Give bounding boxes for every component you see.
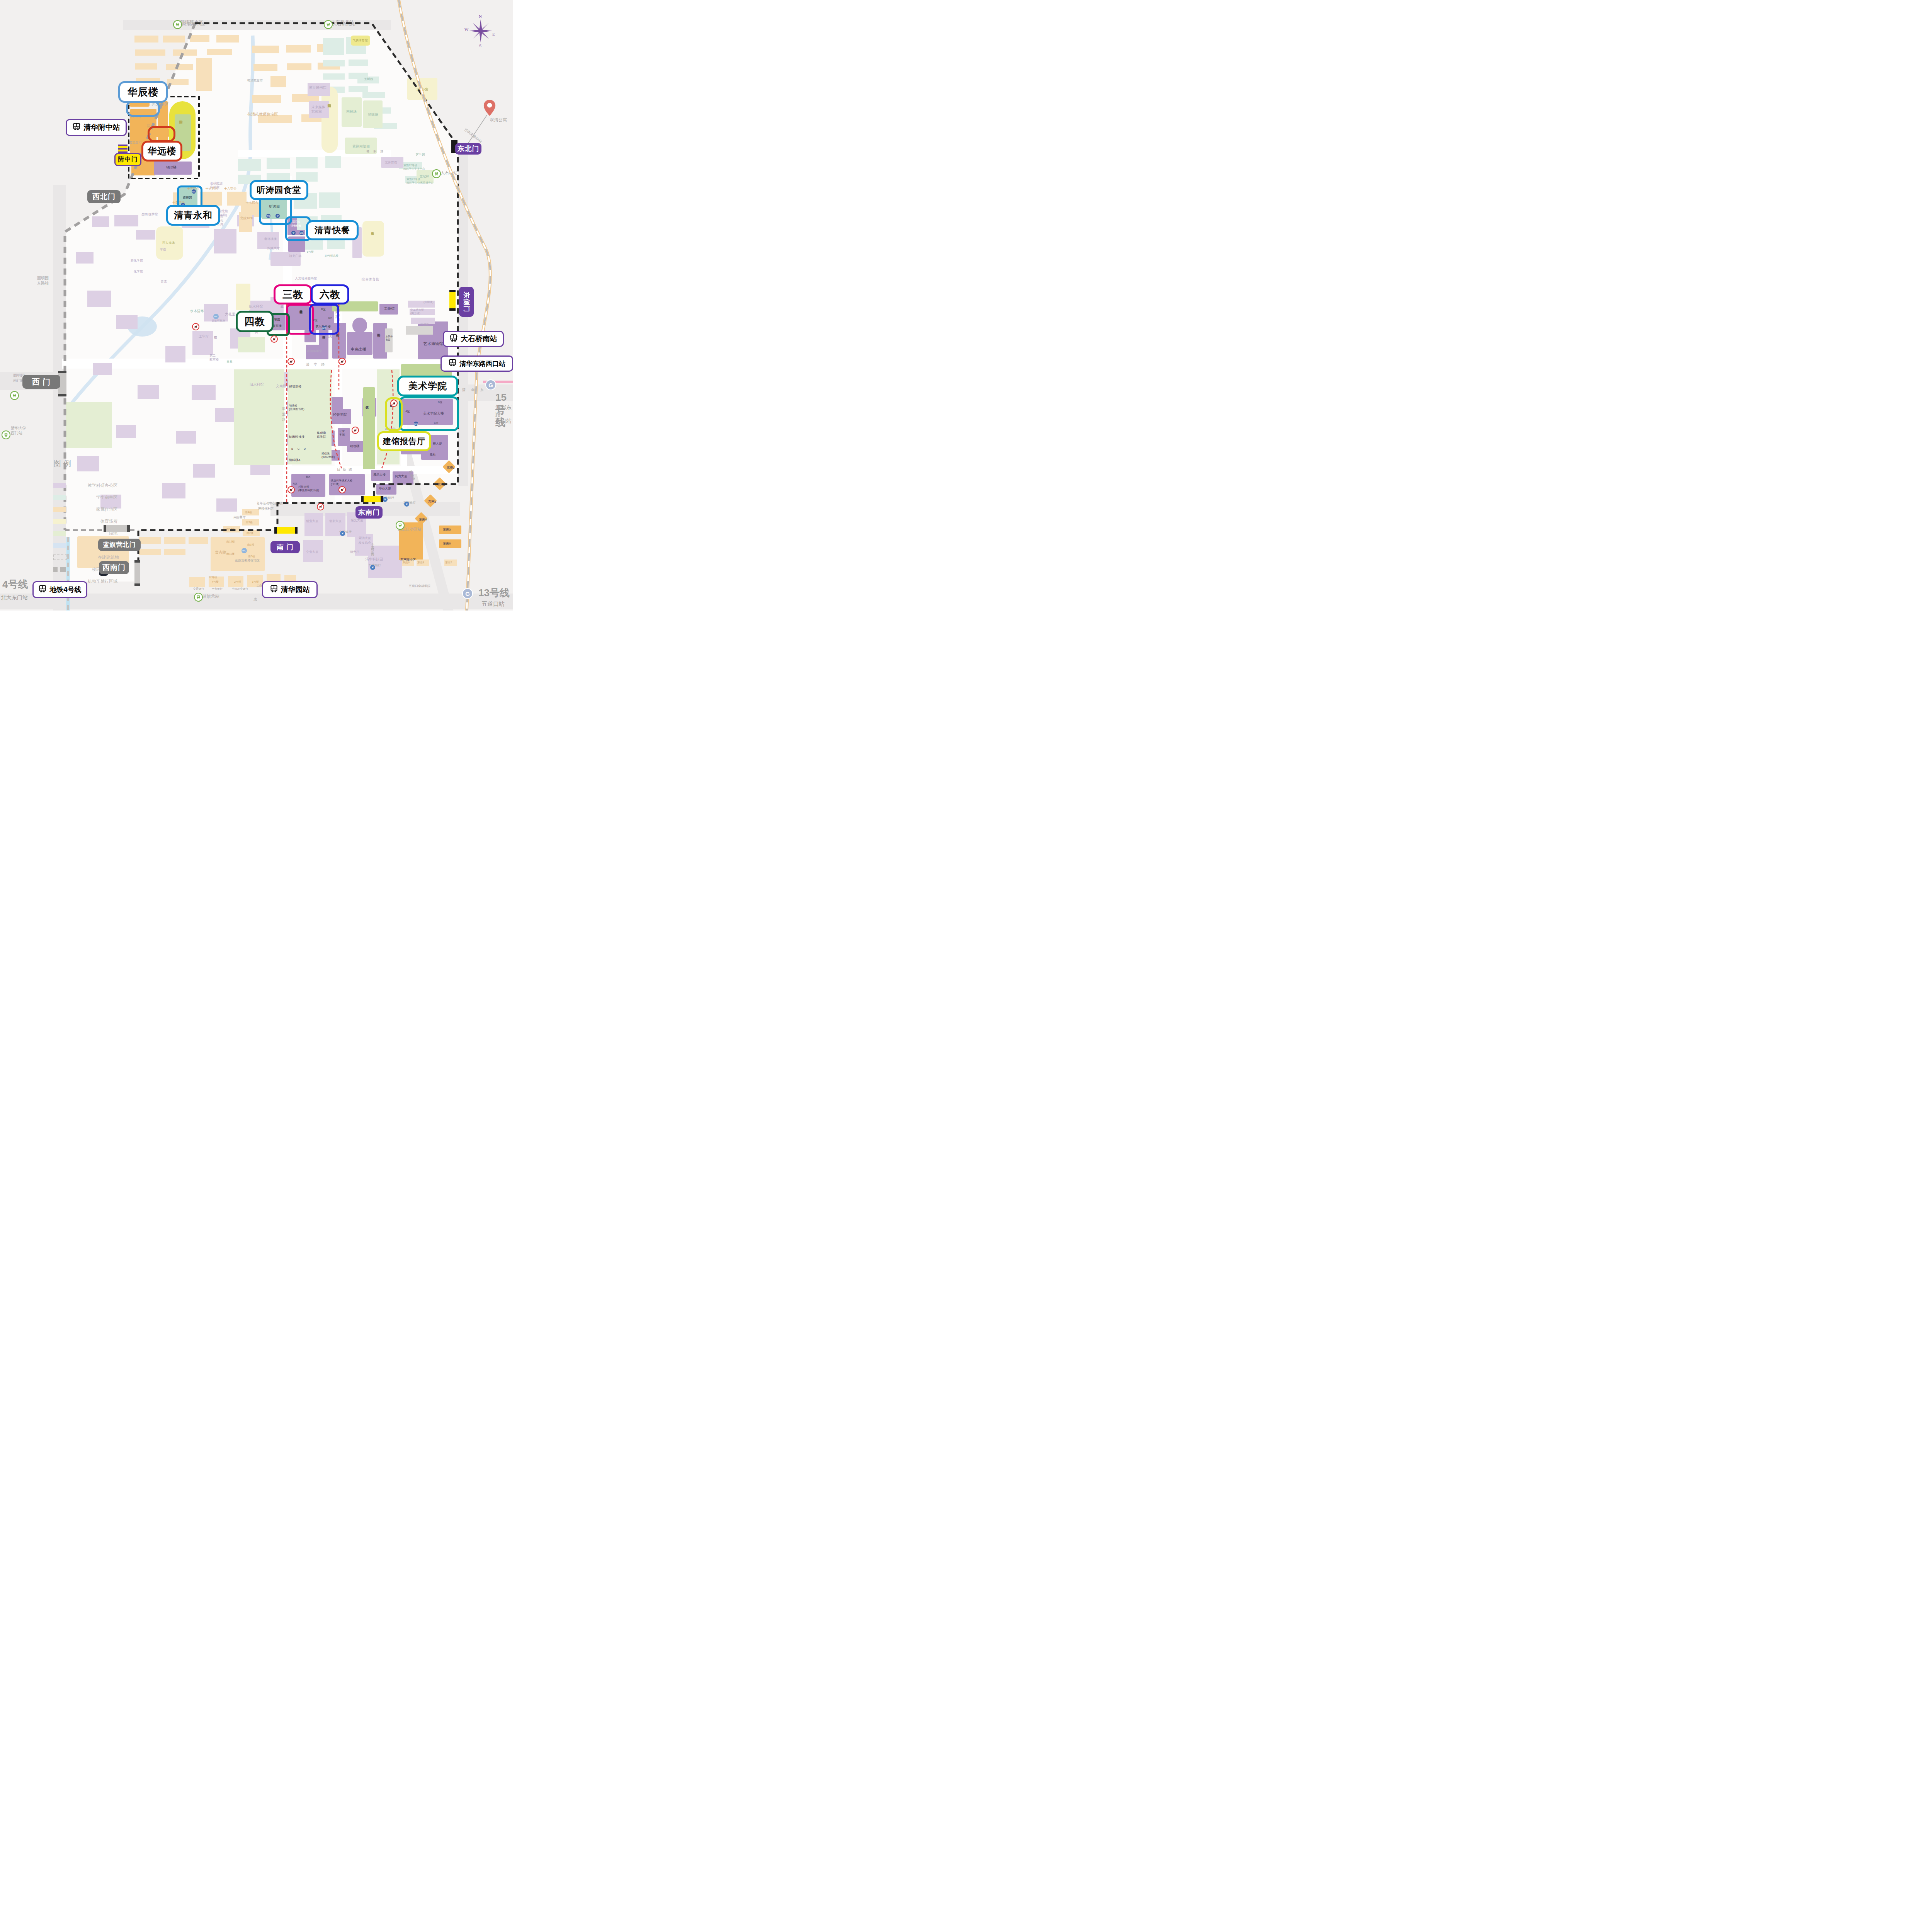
district-block (303, 540, 323, 562)
district-block (433, 477, 446, 490)
gate-marker (274, 527, 298, 534)
district-block (258, 115, 292, 123)
legend-label: 在建建筑物 (73, 554, 119, 560)
legend-item: 学生宿舍区 (53, 492, 127, 503)
callout-sijiao[interactable]: 四教 (236, 311, 274, 332)
callout-huayuanlou[interactable]: 华远楼 (141, 141, 182, 162)
compass-e: E (492, 32, 495, 36)
district-block (291, 474, 325, 497)
highlight-label: 观畴园 (183, 196, 192, 200)
district-block (135, 63, 157, 70)
road-white (62, 359, 459, 369)
restroom-icon: WC (266, 214, 270, 218)
bus-stop-label: 清华附中站 (83, 122, 120, 133)
district-block (345, 138, 377, 154)
gate-marker (118, 145, 128, 154)
bus-stop-label: 清华园站 (281, 585, 310, 595)
district-block (242, 519, 259, 526)
wc-icon: WC (241, 548, 247, 553)
district-block (362, 221, 384, 257)
district-block (408, 301, 435, 308)
gate-south[interactable]: 南 门 (270, 541, 300, 553)
legend-swatch (53, 531, 66, 536)
district-block (139, 537, 161, 544)
district-block (93, 363, 112, 375)
no-entry-icon (287, 358, 295, 365)
bank-icon: ¥ (370, 565, 375, 570)
callout-label: 六教 (320, 288, 340, 301)
no-entry-icon (270, 335, 278, 343)
district-block (328, 409, 351, 424)
highlight-label: 第四 (274, 318, 280, 322)
district-block (305, 240, 323, 250)
district-block (308, 83, 330, 96)
district-block (163, 36, 185, 43)
restroom-icon: WC (299, 231, 304, 235)
district-block (165, 346, 185, 362)
district-block (250, 464, 270, 475)
callout-label: 华辰楼 (128, 85, 159, 99)
district-block (323, 60, 345, 66)
restroom-icon: WC (192, 189, 196, 194)
map-label: 芝兰园 (416, 153, 425, 157)
legend-label: 体育场所 (71, 519, 117, 524)
highlight-label: 清青快餐 (291, 224, 301, 228)
gate-label: 西北门 (92, 192, 116, 202)
map-label: 4号线 (2, 578, 28, 591)
street-stop-icon[interactable] (2, 430, 10, 439)
callout-qingqing-snack[interactable]: 清青快餐 (306, 220, 359, 240)
district-block (216, 35, 239, 43)
district-block (385, 328, 393, 352)
bank-icon: ¥ (404, 502, 409, 507)
gate-marker (361, 496, 383, 502)
bus-icon (173, 20, 182, 29)
district-block (363, 387, 375, 469)
highlight-label: 清芬园 (292, 220, 300, 224)
callout-sanjiao[interactable]: 三教 (274, 284, 312, 304)
district-block (411, 318, 435, 324)
hl-no6-teaching-building[interactable]: B区A区C区第六教学楼WC (309, 304, 339, 335)
gate-label: 西南门 (102, 563, 126, 573)
gate-eastside[interactable]: 东侧门 (459, 287, 474, 317)
legend-swatch (53, 567, 66, 572)
district-block (223, 539, 240, 546)
bus-icon (72, 122, 81, 133)
bus-icon (449, 334, 458, 344)
district-block (247, 575, 263, 587)
callout-label: 清青永和 (174, 209, 213, 221)
district-block (134, 36, 158, 43)
gate-label: 东北门 (457, 144, 480, 153)
district-block (66, 402, 112, 448)
district-block (190, 35, 209, 42)
map-label: 综合体育馆 (362, 277, 379, 282)
gate-marker (449, 290, 456, 311)
gate-label: 东南门 (358, 508, 380, 517)
district-block (347, 332, 372, 355)
gate-west[interactable]: 西 门 (22, 375, 60, 389)
district-block (410, 309, 435, 315)
no-entry-icon (317, 503, 324, 510)
district-block (162, 483, 185, 498)
legend-swatch (53, 554, 67, 560)
district-block (363, 100, 383, 128)
legend-swatch (53, 507, 66, 512)
district-block (407, 78, 437, 100)
legend-swatch (53, 483, 66, 488)
district-block (381, 157, 403, 168)
shuangqing-apartment-pin[interactable] (483, 99, 496, 118)
busstop-metro-line4[interactable]: 地铁4号线 (32, 581, 87, 598)
street-stop-icon[interactable] (432, 169, 441, 178)
campus-map: 荷清苑小区大石桥北站北园餐厅西北小区建设银行西北超市荷清苑超市荷清苑教师住宅区气… (0, 0, 513, 611)
gate-northeast[interactable]: 东北门 (455, 143, 481, 155)
district-block (439, 526, 461, 534)
district-block (347, 441, 364, 452)
district-block (76, 252, 94, 264)
callout-label: 建馆报告厅 (383, 436, 425, 447)
bus-stop-label: 地铁4号线 (49, 585, 81, 594)
no-entry-icon (338, 358, 346, 365)
highlight-label: A区 (405, 410, 410, 413)
metro-logo-icon[interactable]: G (485, 379, 496, 390)
busstop-dashiqiao-south[interactable]: 大石桥南站 (443, 331, 504, 347)
map-label: 水木清华 (190, 309, 204, 313)
map-label: 平安银行 (212, 587, 223, 591)
compass-w: W (464, 27, 468, 32)
district-block (309, 101, 329, 118)
bus-icon (270, 585, 278, 595)
no-entry-icon (338, 486, 346, 493)
bus-stop-label: 大石桥南站 (461, 334, 497, 344)
restaurant-icon: Ψ (276, 214, 280, 218)
district-block (228, 576, 243, 587)
district-block (287, 63, 311, 70)
bus-icon (432, 169, 441, 178)
district-block (244, 553, 261, 560)
district-block (238, 337, 265, 352)
district-block (154, 162, 192, 175)
district-block (357, 77, 379, 83)
district-block (243, 542, 260, 548)
compass-n: N (479, 14, 482, 19)
hl-huayuan-building[interactable] (148, 126, 175, 142)
map-label: 南园餐厅 (233, 515, 246, 519)
callout-art-academy[interactable]: 美术学院 (397, 376, 458, 396)
busstop-qinghuayuan[interactable]: 清华园站 (262, 581, 318, 598)
street-stop-icon[interactable] (173, 20, 182, 29)
district-block (376, 484, 396, 495)
district-block (176, 431, 196, 444)
legend-label: 学生宿舍区 (71, 495, 117, 500)
restaurant-icon: Ψ (291, 231, 296, 235)
restroom-icon: WC (414, 422, 418, 426)
district-block (214, 229, 236, 253)
district-block (216, 498, 237, 512)
highlight-label: 教室楼 (272, 324, 282, 328)
district-block (209, 577, 224, 587)
legend-title: 图例 (53, 458, 127, 469)
district-block (306, 345, 328, 359)
street-stop-icon[interactable] (10, 391, 19, 400)
district-block (239, 212, 252, 232)
bank-icon: ¥ (340, 531, 345, 536)
district-block (138, 385, 159, 399)
district-block (323, 38, 344, 55)
district-block (215, 408, 236, 422)
district-block (164, 537, 185, 544)
callout-label: 听涛园食堂 (257, 184, 301, 196)
highlight-label: 听涛园 (269, 204, 280, 209)
district-block (379, 304, 398, 315)
no-entry-icon (287, 486, 295, 493)
gate-fuzhong[interactable]: 附中门 (114, 153, 141, 166)
map-label: 生物 医学馆 (141, 213, 158, 216)
district-block (166, 64, 193, 70)
district-block (189, 537, 208, 544)
callout-liujiao[interactable]: 六教 (311, 284, 349, 304)
district-block (270, 252, 301, 266)
gate-marker (134, 560, 140, 586)
location-pin-icon (483, 99, 496, 117)
district-block (393, 471, 413, 485)
district-block (139, 549, 161, 555)
district-block (371, 470, 390, 481)
highlight-label: B区 (438, 401, 442, 404)
district-block (238, 159, 261, 171)
district-block (243, 530, 260, 536)
district-block (270, 76, 286, 87)
district-block (296, 157, 318, 168)
district-block (173, 49, 197, 56)
district-block (87, 291, 111, 307)
callout-label: 三教 (282, 288, 303, 301)
highlight-label: 美术学院大楼 (423, 412, 444, 416)
district-block (252, 46, 279, 53)
gate-label: 附中门 (118, 156, 138, 164)
gate-southwest[interactable]: 西南门 (99, 561, 129, 574)
district-block (368, 546, 402, 578)
gate-label: 蓝旗营北门 (103, 541, 136, 549)
callout-label: 华远楼 (148, 145, 177, 157)
callout-qingqing-yonghe[interactable]: 清青永和 (166, 205, 220, 226)
district-block (192, 385, 216, 400)
district-block (321, 87, 338, 153)
callout-jianguan-hall[interactable]: 建馆报告厅 (377, 431, 431, 451)
district-block (234, 369, 284, 465)
street-stop-label: 圆明园 东路站 (37, 276, 49, 286)
district-block (319, 192, 340, 208)
street-stop-icon[interactable] (396, 521, 405, 530)
no-entry-icon (352, 427, 359, 434)
map-label: 十八宿舍 (206, 187, 218, 191)
district-block (349, 86, 368, 92)
bus-icon (2, 430, 10, 439)
district-block (267, 158, 290, 169)
highlight-label: B区 (321, 308, 326, 311)
district-block (325, 156, 341, 168)
district-block (223, 526, 240, 532)
district-block (193, 464, 215, 478)
district-block (253, 64, 277, 71)
map-label: 清华东路 西口站 (495, 404, 513, 425)
district-block (156, 226, 183, 260)
district-block (349, 60, 368, 66)
legend-label: 家属住宅区 (71, 507, 117, 512)
busstop-qinghuadonglu-xikou[interactable]: 清华东路西口站 (440, 355, 513, 372)
no-entry-icon (390, 400, 398, 407)
map-label: 6号楼 (307, 250, 314, 254)
street-stop-icon[interactable] (194, 593, 203, 602)
gate-lanqiying-north[interactable]: 蓝旗营北门 (98, 539, 141, 551)
district-block (189, 577, 205, 587)
district-block (136, 230, 155, 240)
gate-label: 南 门 (277, 543, 294, 552)
map-label: 交通银行 (193, 587, 204, 591)
map-label: 双清公寓 (490, 117, 507, 123)
map-label: 低碳能源 实验室 (210, 182, 223, 189)
compass-star (468, 19, 493, 43)
map-label: 善斋 (161, 280, 167, 284)
gate-southeast[interactable]: 东南门 (355, 506, 383, 519)
district-block (351, 36, 370, 46)
district-block (329, 474, 365, 495)
district-block (164, 549, 185, 555)
no-entry-icon (192, 323, 199, 330)
gate-label: 西 门 (32, 377, 51, 387)
callout-label: 清青快餐 (315, 224, 350, 236)
bus-icon (10, 391, 19, 400)
bus-icon (194, 593, 203, 602)
highlight-label: C区 (434, 422, 439, 425)
map-label: 荷清苑超市 (247, 79, 263, 83)
district-block (362, 92, 385, 98)
district-block (444, 560, 457, 566)
compass-s: S (479, 43, 481, 48)
district-block (417, 170, 434, 183)
bus-icon (448, 359, 457, 369)
district-block (323, 73, 345, 80)
district-block (252, 95, 281, 103)
district-block (192, 331, 213, 355)
busstop-qinghuafuzhong[interactable]: 清华附中站 (66, 119, 127, 136)
district-block (439, 539, 461, 548)
callout-tingtaoyuan-canteen[interactable]: 听涛园食堂 (250, 180, 308, 200)
callout-huachenlou[interactable]: 华辰楼 (118, 81, 168, 103)
street-stop-label: 清华大学 西门站 (11, 426, 26, 435)
district-block (200, 192, 222, 206)
legend-swatch (53, 519, 66, 524)
district-block (257, 232, 279, 249)
legend-item: 教学科研办公区 (53, 480, 127, 492)
gate-label: 东侧门 (462, 291, 471, 312)
district-block (342, 97, 362, 127)
district-block (116, 315, 138, 329)
district-block (207, 49, 232, 55)
bus-icon (396, 521, 405, 530)
bus-icon (38, 585, 47, 595)
hl-art-academy-building[interactable]: B区A区C区美术学院大楼WC (399, 396, 459, 431)
map-label: 化学馆 (134, 270, 143, 274)
wc-icon: WC (213, 314, 219, 319)
map-label: 过街天桥1KM (463, 128, 483, 144)
district-block (304, 513, 323, 536)
map-label: 中国农业银行 (232, 587, 248, 591)
legend-swatch (53, 543, 66, 548)
map-label: 新化学馆 (131, 259, 143, 263)
district-block (223, 552, 240, 558)
district-block (116, 425, 136, 438)
district-block (135, 49, 165, 56)
district-block (92, 216, 109, 227)
road-gray (123, 20, 391, 30)
hl-huachen-building[interactable] (126, 100, 160, 117)
district-block (288, 369, 332, 464)
highlight-label: A区 (328, 316, 333, 320)
district-block (196, 58, 212, 91)
map-label: 10号楼北楼 (325, 254, 338, 258)
restroom-icon: WC (322, 326, 326, 330)
callout-label: 美术学院 (408, 380, 447, 392)
compass-rose: N W E S (468, 19, 495, 54)
district-block (114, 215, 138, 226)
district-block (406, 326, 433, 335)
map-label: 人文社科图书馆 (295, 277, 317, 281)
street-stop-label: 大石桥站 (440, 170, 457, 176)
district-block (352, 318, 367, 333)
district-block (167, 79, 189, 85)
highlight-label: C区 (313, 319, 318, 322)
gate-marker (104, 525, 130, 532)
callout-label: 四教 (244, 315, 265, 328)
district-block (417, 560, 429, 566)
district-block (236, 284, 250, 310)
legend-item: 家属住宅区 (53, 503, 127, 515)
district-block (242, 509, 259, 515)
legend-swatch (53, 495, 66, 500)
bus-icon (324, 20, 333, 29)
metro-logo-icon[interactable]: G (462, 588, 473, 599)
legend-label: 教学科研办公区 (71, 483, 117, 488)
map-label: 五道口金融学院 (409, 584, 430, 588)
district-block (402, 560, 414, 566)
street-stop-icon[interactable] (324, 20, 333, 29)
gate-northwest[interactable]: 西北门 (87, 190, 121, 203)
district-block (286, 45, 311, 53)
bus-stop-label: 清华东路西口站 (459, 359, 505, 368)
map-label: 十六宿舍 (224, 187, 236, 191)
